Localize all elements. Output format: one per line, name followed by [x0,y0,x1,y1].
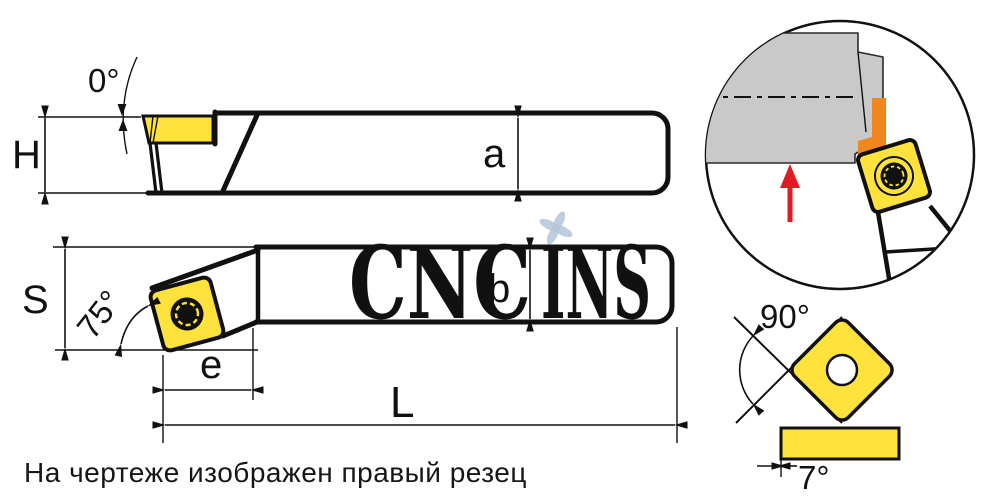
note-text: На чертеже изображен правый резец [24,457,527,488]
technical-drawing-page: CNC INS H a 0° [0,0,1000,500]
h-dimension-label: H [12,133,41,177]
clearance-angle-label: 7° [798,459,830,496]
point-angle-label: 90° [760,298,810,335]
lead-angle-label: 75° [69,283,129,345]
point-angle-arc [740,336,753,404]
front-clearance-face [150,143,162,193]
head-bottom-edge [223,322,257,336]
rake-arrow-upper [118,104,127,116]
rake-arrow-lower [119,119,128,131]
lead-angle-arc [121,306,148,344]
insert-detail-views: 90° 7° [734,298,899,496]
insert-side-detail [781,428,899,459]
workpiece [690,33,883,163]
a-dimension-label: a [483,132,506,176]
s-dimension-label: S [22,278,49,322]
rake-angle-label: 0° [88,62,120,99]
insert-plan [149,276,225,352]
side-view: H a 0° [12,57,668,193]
e-dimension-label: e [200,343,222,387]
detail-view-circle [690,21,974,290]
head-side-face [222,113,258,193]
l-dimension-label: L [390,378,414,427]
tool-holder-drawing: CNC INS H a 0° [0,0,1000,500]
b-dimension-label: b [488,267,510,311]
